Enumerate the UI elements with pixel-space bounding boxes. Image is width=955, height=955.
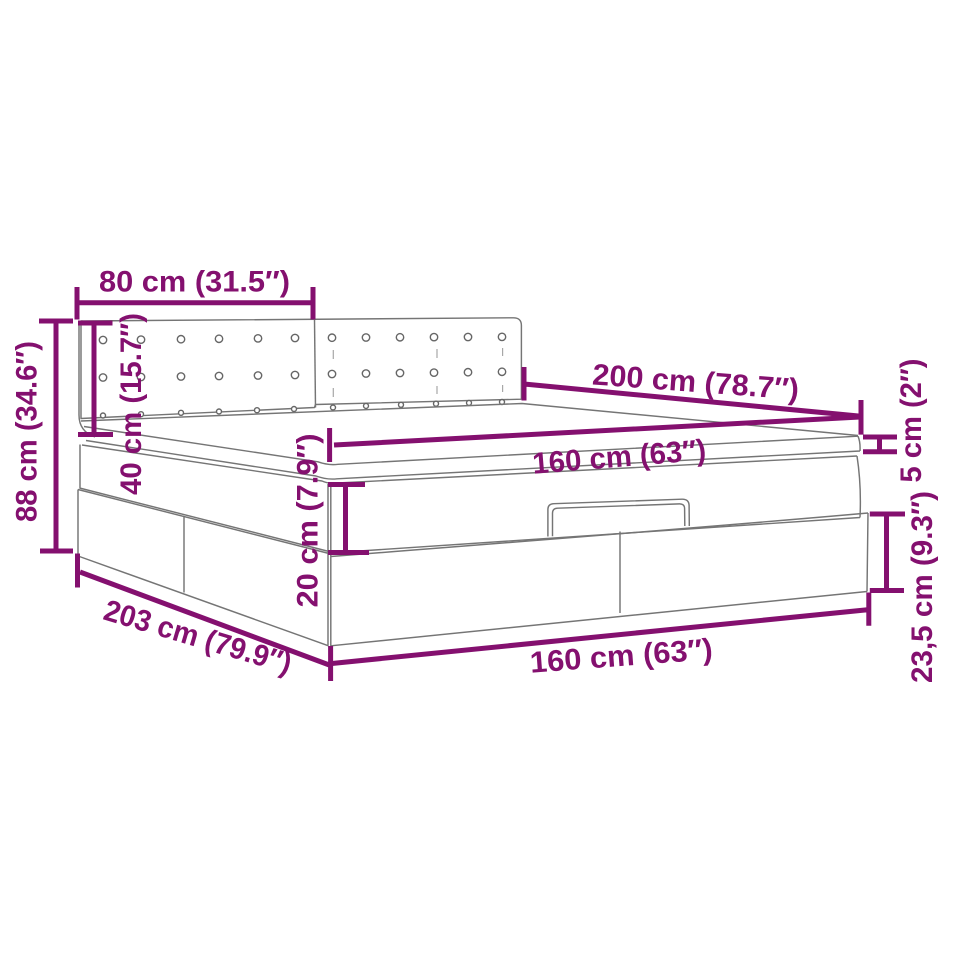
svg-text:5 cm (2″): 5 cm (2″) [895,359,928,483]
svg-text:20 cm (7.9″): 20 cm (7.9″) [292,434,325,608]
svg-text:80 cm (31.5″): 80 cm (31.5″) [99,266,290,299]
svg-text:23,5 cm (9.3″): 23,5 cm (9.3″) [906,491,939,683]
svg-text:88 cm (34.6″): 88 cm (34.6″) [11,341,44,522]
svg-text:40 cm (15.7″): 40 cm (15.7″) [115,313,148,495]
